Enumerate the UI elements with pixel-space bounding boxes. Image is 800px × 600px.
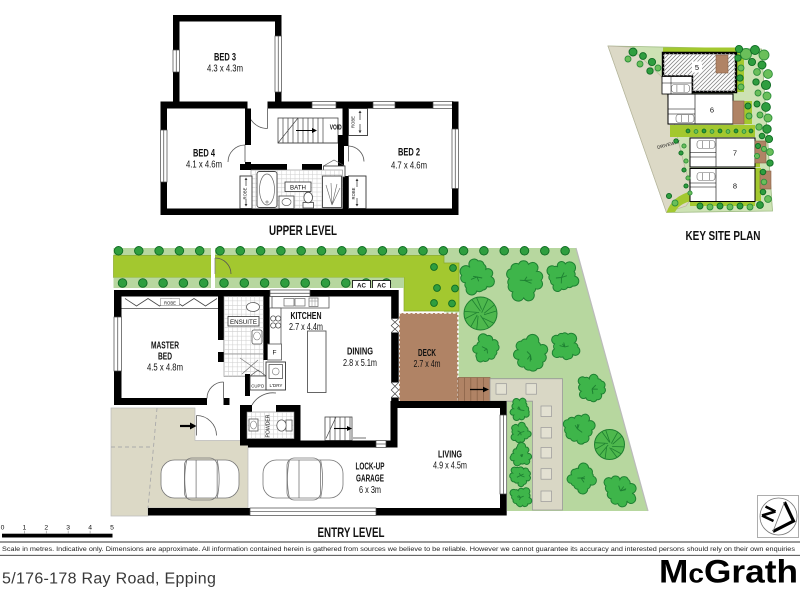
svg-text:5: 5 <box>695 63 699 72</box>
svg-text:UPPER LEVEL: UPPER LEVEL <box>269 222 337 238</box>
svg-text:ROBE: ROBE <box>242 187 247 199</box>
svg-text:KITCHEN: KITCHEN <box>291 310 322 322</box>
svg-text:ENTRY LEVEL: ENTRY LEVEL <box>318 524 385 540</box>
svg-text:4.3 x 4.3m: 4.3 x 4.3m <box>207 64 243 75</box>
svg-text:6: 6 <box>710 106 714 115</box>
svg-text:GARAGE: GARAGE <box>356 473 384 485</box>
svg-text:3: 3 <box>66 525 70 532</box>
svg-text:KEY SITE PLAN: KEY SITE PLAN <box>686 228 761 243</box>
svg-text:4.1 x 4.6m: 4.1 x 4.6m <box>186 160 222 171</box>
svg-text:2.8 x 5.1m: 2.8 x 5.1m <box>343 358 377 369</box>
svg-text:LIVING: LIVING <box>438 449 462 461</box>
svg-text:LOCK-UP: LOCK-UP <box>356 461 385 473</box>
svg-text:F: F <box>273 350 277 357</box>
svg-text:POWDER: POWDER <box>266 415 272 438</box>
svg-text:McGrath: McGrath <box>659 554 798 590</box>
svg-text:5: 5 <box>110 525 114 532</box>
svg-text:1: 1 <box>23 525 27 532</box>
svg-text:BED: BED <box>158 351 172 363</box>
svg-text:ROBE: ROBE <box>164 300 176 305</box>
svg-text:4.7 x 4.6m: 4.7 x 4.6m <box>391 161 427 172</box>
svg-text:BED 4: BED 4 <box>193 148 216 160</box>
svg-text:BED 3: BED 3 <box>214 52 236 64</box>
svg-text:5/176-178 Ray Road, Epping: 5/176-178 Ray Road, Epping <box>2 571 216 588</box>
svg-text:CUP'D: CUP'D <box>251 384 265 389</box>
svg-text:DECK: DECK <box>418 347 436 359</box>
svg-text:Scale in metres. Indicative on: Scale in metres. Indicative only. Dimens… <box>2 546 796 553</box>
svg-text:BED 2: BED 2 <box>398 147 420 159</box>
svg-text:4.5 x 4.8m: 4.5 x 4.8m <box>147 363 183 374</box>
svg-text:L'DRY: L'DRY <box>270 383 283 388</box>
svg-text:DINING: DINING <box>347 346 373 358</box>
svg-text:4: 4 <box>88 525 92 532</box>
svg-text:2.7 x 4m: 2.7 x 4m <box>414 359 441 370</box>
svg-text:8: 8 <box>733 182 737 191</box>
svg-text:ROBE: ROBE <box>351 187 356 199</box>
svg-text:VOID: VOID <box>330 123 342 132</box>
svg-text:4.9 x 4.5m: 4.9 x 4.5m <box>433 461 467 472</box>
svg-text:6 x 3m: 6 x 3m <box>359 485 381 496</box>
svg-text:0: 0 <box>1 525 5 532</box>
svg-text:ROBE: ROBE <box>351 116 356 128</box>
svg-text:BATH: BATH <box>290 184 306 191</box>
svg-text:7: 7 <box>733 149 737 158</box>
svg-text:2: 2 <box>44 525 48 532</box>
svg-text:2.7 x 4.4m: 2.7 x 4.4m <box>289 322 323 333</box>
svg-text:ENSUITE: ENSUITE <box>230 319 258 326</box>
